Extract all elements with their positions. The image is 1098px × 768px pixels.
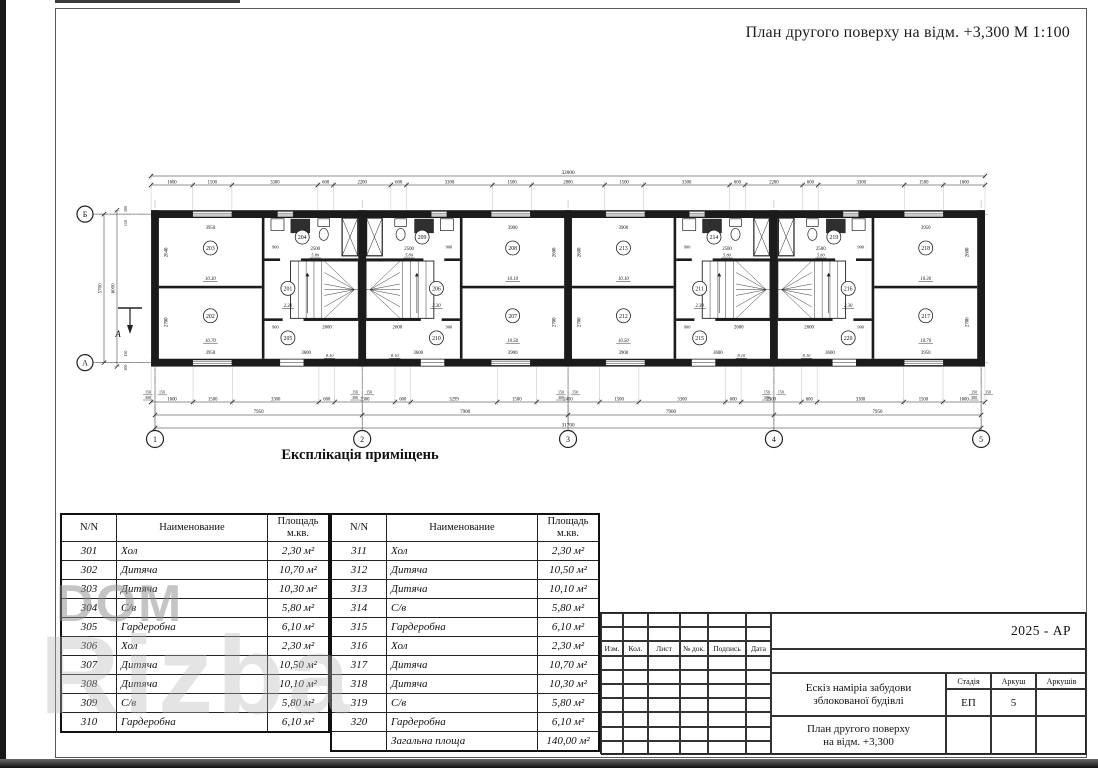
drawing-title: План другого поверху на відм. +3,300 М 1… [746, 24, 1070, 42]
total-row: Загальна площа140,00 м² [331, 732, 599, 752]
svg-text:8.10: 8.10 [326, 353, 334, 358]
revision-cell [601, 712, 623, 726]
revision-cell [680, 613, 708, 627]
svg-text:150: 150 [985, 390, 991, 395]
revision-cell [746, 741, 771, 755]
sheet-title-cell: План другого поверху на відм. +3,300 [771, 716, 946, 755]
svg-text:600: 600 [807, 180, 815, 185]
svg-text:А: А [82, 358, 88, 367]
svg-text:204: 204 [298, 235, 307, 241]
revision-cell: Кол. [623, 641, 648, 655]
table-row: 311Хол2,30 м² [331, 542, 599, 561]
svg-text:150: 150 [558, 390, 564, 395]
svg-text:150: 150 [123, 220, 128, 226]
table-row: 319С/в5,80 м² [331, 694, 599, 713]
svg-text:2600: 2600 [966, 247, 971, 257]
svg-text:7900: 7900 [460, 410, 471, 415]
revision-cell [746, 712, 771, 726]
revision-cell [601, 741, 623, 755]
revision-cell [746, 656, 771, 670]
svg-text:300: 300 [352, 395, 358, 400]
svg-text:7900: 7900 [666, 410, 677, 415]
svg-text:213: 213 [619, 246, 628, 252]
svg-text:300: 300 [145, 395, 151, 400]
revision-cell [648, 627, 680, 641]
revision-cell [623, 727, 648, 741]
svg-text:600: 600 [399, 397, 407, 402]
svg-text:8.10: 8.10 [738, 353, 746, 358]
svg-text:2200: 2200 [769, 180, 779, 185]
svg-text:900: 900 [446, 325, 453, 330]
revision-cell [601, 613, 623, 627]
svg-text:300: 300 [123, 206, 128, 212]
svg-text:3300: 3300 [857, 180, 867, 185]
svg-text:900: 900 [272, 245, 279, 250]
svg-text:3950: 3950 [921, 351, 931, 356]
svg-text:2600: 2600 [578, 247, 583, 257]
svg-text:600: 600 [322, 180, 330, 185]
stage-label: Стадія [946, 673, 991, 689]
svg-text:5.80: 5.80 [723, 253, 731, 258]
svg-text:900: 900 [857, 245, 864, 250]
svg-text:2300: 2300 [360, 397, 370, 402]
svg-text:150: 150 [572, 390, 578, 395]
svg-text:900: 900 [272, 325, 279, 330]
svg-text:А: А [114, 329, 121, 339]
table-row: 315Гардеробна6,10 м² [331, 618, 599, 637]
document-code: 2025 - АР [771, 623, 1071, 639]
revision-cell [601, 656, 623, 670]
revision-cell [623, 613, 648, 627]
svg-text:214: 214 [710, 235, 719, 241]
explication-heading: Експлікація приміщень [245, 447, 475, 464]
revision-cell: Подпись [708, 641, 746, 655]
revision-cell [746, 613, 771, 627]
svg-text:5.80: 5.80 [817, 253, 825, 258]
table-row: 313Дитяча10,10 м² [331, 580, 599, 599]
svg-text:900: 900 [446, 245, 453, 250]
table-row: 312Дитяча10,50 м² [331, 561, 599, 580]
svg-text:300: 300 [764, 395, 770, 400]
svg-text:2600: 2600 [393, 326, 403, 331]
architectural-sheet: { "page": { "title": "План другого повер… [0, 0, 1098, 768]
table-row: 317Дитяча10,70 м² [331, 656, 599, 675]
svg-text:4: 4 [772, 435, 776, 444]
svg-text:2500: 2500 [816, 247, 826, 252]
revision-cell [648, 698, 680, 712]
revision-cell [708, 727, 746, 741]
svg-text:207: 207 [508, 314, 517, 320]
col-num: N/N [331, 514, 387, 542]
svg-text:1500: 1500 [614, 397, 624, 402]
svg-text:3950: 3950 [206, 226, 216, 231]
table-row: 316Хол2,30 м² [331, 637, 599, 656]
revision-cell [623, 670, 648, 684]
svg-text:3600: 3600 [825, 351, 835, 356]
table-row: 320Гардеробна6,10 м² [331, 713, 599, 732]
revision-cell [648, 656, 680, 670]
revision-cell [601, 684, 623, 698]
svg-text:3300: 3300 [682, 180, 692, 185]
svg-text:150: 150 [764, 390, 770, 395]
svg-text:3: 3 [566, 435, 570, 444]
revision-cell [623, 698, 648, 712]
watermark-big: Rizba [40, 612, 353, 739]
svg-text:212: 212 [619, 314, 628, 320]
svg-text:209: 209 [418, 235, 427, 241]
svg-text:220: 220 [844, 336, 853, 342]
revision-cell: Дата [746, 641, 771, 655]
svg-text:218: 218 [921, 246, 930, 252]
revision-cell: Лист [648, 641, 680, 655]
revision-cell [680, 727, 708, 741]
floor-plan-drawing: 20310.303950264020210.703950270020425005… [60, 150, 1030, 490]
svg-text:1600: 1600 [167, 180, 177, 185]
sheet-label: Аркуш [991, 673, 1036, 689]
revision-cell [680, 670, 708, 684]
revision-cell [648, 670, 680, 684]
revision-cell [708, 627, 746, 641]
svg-text:5: 5 [979, 435, 983, 444]
revision-cell: № док. [680, 641, 708, 655]
svg-text:31700: 31700 [562, 422, 575, 428]
revision-cell [623, 741, 648, 755]
svg-text:900: 900 [684, 245, 691, 250]
svg-text:203: 203 [206, 246, 215, 252]
table-row: 318Дитяча10,30 м² [331, 675, 599, 694]
svg-text:3600: 3600 [713, 351, 723, 356]
svg-text:3950: 3950 [206, 351, 216, 356]
revision-cell [746, 670, 771, 684]
revision-cell [623, 627, 648, 641]
svg-text:2700: 2700 [966, 317, 971, 327]
svg-text:2700: 2700 [165, 317, 170, 327]
svg-text:600: 600 [730, 397, 738, 402]
revision-cell [623, 712, 648, 726]
svg-text:3299: 3299 [449, 397, 459, 402]
svg-text:300: 300 [123, 365, 128, 371]
svg-text:900: 900 [684, 325, 691, 330]
revision-cell [601, 698, 623, 712]
svg-text:900: 900 [857, 325, 864, 330]
svg-text:210: 210 [432, 336, 441, 342]
revision-cell [708, 613, 746, 627]
svg-text:8.10: 8.10 [803, 353, 811, 358]
title-block: Изм.Кол.Лист№ док.ПодписьДата 2025 - АР … [600, 612, 1086, 754]
revision-cell [648, 712, 680, 726]
photo-left-edge [0, 0, 6, 768]
revision-cell [623, 684, 648, 698]
svg-text:205: 205 [284, 336, 293, 342]
svg-text:1600: 1600 [959, 180, 969, 185]
revision-cell [648, 684, 680, 698]
revision-cell [708, 684, 746, 698]
revision-cell [708, 670, 746, 684]
svg-text:150: 150 [366, 390, 372, 395]
svg-text:600: 600 [395, 180, 403, 185]
svg-text:201: 201 [284, 286, 293, 292]
revision-cell [648, 727, 680, 741]
svg-text:1500: 1500 [619, 180, 629, 185]
revision-cell [708, 656, 746, 670]
svg-text:2700: 2700 [553, 317, 558, 327]
svg-text:5700: 5700 [99, 283, 104, 294]
revision-cell [746, 698, 771, 712]
svg-text:3900: 3900 [619, 351, 629, 356]
revision-cell [708, 741, 746, 755]
svg-text:2500: 2500 [722, 247, 732, 252]
svg-text:3300: 3300 [270, 180, 280, 185]
svg-text:600: 600 [734, 180, 742, 185]
svg-text:2200: 2200 [357, 180, 367, 185]
svg-text:7950: 7950 [873, 410, 884, 415]
svg-text:Б: Б [83, 210, 88, 219]
svg-text:2640: 2640 [165, 247, 170, 257]
revision-cell [601, 670, 623, 684]
svg-text:3600: 3600 [301, 351, 311, 356]
svg-text:3300: 3300 [445, 180, 455, 185]
revision-cell [680, 684, 708, 698]
svg-text:32000: 32000 [562, 170, 575, 176]
revision-cell [648, 741, 680, 755]
svg-text:1: 1 [153, 435, 157, 444]
revision-cell [601, 727, 623, 741]
col-area: Площадьм.кв. [268, 514, 330, 542]
table-row: 301Хол2,30 м² [61, 542, 329, 561]
svg-text:3600: 3600 [413, 351, 423, 356]
svg-text:219: 219 [830, 235, 839, 241]
svg-text:600: 600 [323, 397, 331, 402]
project-title-cell: Ескіз наміріа забудови зблокованої будів… [771, 673, 946, 716]
revision-cell [746, 684, 771, 698]
svg-text:1500: 1500 [919, 180, 929, 185]
svg-text:1500: 1500 [919, 397, 929, 402]
svg-text:1500: 1500 [208, 397, 218, 402]
svg-text:2: 2 [360, 435, 364, 444]
svg-text:8.10: 8.10 [391, 353, 399, 358]
svg-text:1500: 1500 [512, 397, 522, 402]
svg-text:2500: 2500 [404, 247, 414, 252]
revision-cell [680, 627, 708, 641]
photo-bottom-edge [0, 759, 1098, 768]
svg-text:2500: 2500 [310, 247, 320, 252]
photo-top-edge [55, 0, 240, 3]
svg-text:150: 150 [123, 351, 128, 357]
revision-cell [746, 627, 771, 641]
svg-text:300: 300 [558, 395, 564, 400]
col-name: Наименование [117, 514, 268, 542]
revision-cell [601, 627, 623, 641]
svg-text:150: 150 [145, 390, 151, 395]
revision-cell [680, 656, 708, 670]
svg-text:2600: 2600 [322, 326, 332, 331]
svg-text:7950: 7950 [254, 410, 265, 415]
svg-text:6000: 6000 [112, 283, 117, 294]
svg-text:2600: 2600 [553, 247, 558, 257]
svg-text:2600: 2600 [734, 326, 744, 331]
svg-text:3300: 3300 [677, 397, 687, 402]
sheets-value [1036, 689, 1087, 716]
svg-text:150: 150 [352, 390, 358, 395]
svg-text:150: 150 [778, 390, 784, 395]
svg-text:2700: 2700 [578, 317, 583, 327]
svg-text:3300: 3300 [271, 397, 281, 402]
svg-text:3900: 3900 [508, 226, 518, 231]
svg-text:1600: 1600 [167, 397, 177, 402]
col-name: Наименование [387, 514, 538, 542]
revision-cell [623, 656, 648, 670]
revision-cell [648, 613, 680, 627]
svg-text:206: 206 [432, 286, 441, 292]
col-num: N/N [61, 514, 117, 542]
svg-text:202: 202 [206, 314, 215, 320]
col-area: Площадьм.кв. [538, 514, 600, 542]
revision-cell [708, 698, 746, 712]
svg-text:2800: 2800 [563, 180, 573, 185]
svg-text:3900: 3900 [619, 226, 629, 231]
revision-cell [680, 712, 708, 726]
svg-text:3950: 3950 [921, 226, 931, 231]
svg-text:5.80: 5.80 [311, 253, 319, 258]
svg-text:3900: 3900 [508, 351, 518, 356]
svg-text:1500: 1500 [208, 180, 218, 185]
svg-text:1500: 1500 [507, 180, 517, 185]
revision-cell [680, 698, 708, 712]
svg-text:216: 216 [844, 286, 853, 292]
revision-cell [708, 712, 746, 726]
svg-text:300: 300 [971, 395, 977, 400]
svg-text:600: 600 [806, 397, 814, 402]
svg-text:211: 211 [695, 286, 704, 292]
svg-text:5.80: 5.80 [405, 253, 413, 258]
revision-cell [680, 741, 708, 755]
svg-text:3300: 3300 [856, 397, 866, 402]
svg-text:150: 150 [159, 390, 165, 395]
svg-text:150: 150 [971, 390, 977, 395]
revision-cell [746, 727, 771, 741]
svg-text:215: 215 [695, 336, 704, 342]
svg-text:2600: 2600 [804, 326, 814, 331]
table-row: 314С/в5,80 м² [331, 599, 599, 618]
explication-table-right: N/NНаименованиеПлощадьм.кв.311Хол2,30 м²… [330, 513, 600, 752]
svg-text:208: 208 [508, 246, 517, 252]
svg-text:217: 217 [921, 314, 930, 320]
sheets-label: Аркушів [1036, 673, 1087, 689]
sheet-value: 5 [991, 689, 1036, 716]
stage-value: ЕП [946, 689, 991, 716]
revision-cell: Изм. [601, 641, 623, 655]
svg-text:1600: 1600 [959, 397, 969, 402]
